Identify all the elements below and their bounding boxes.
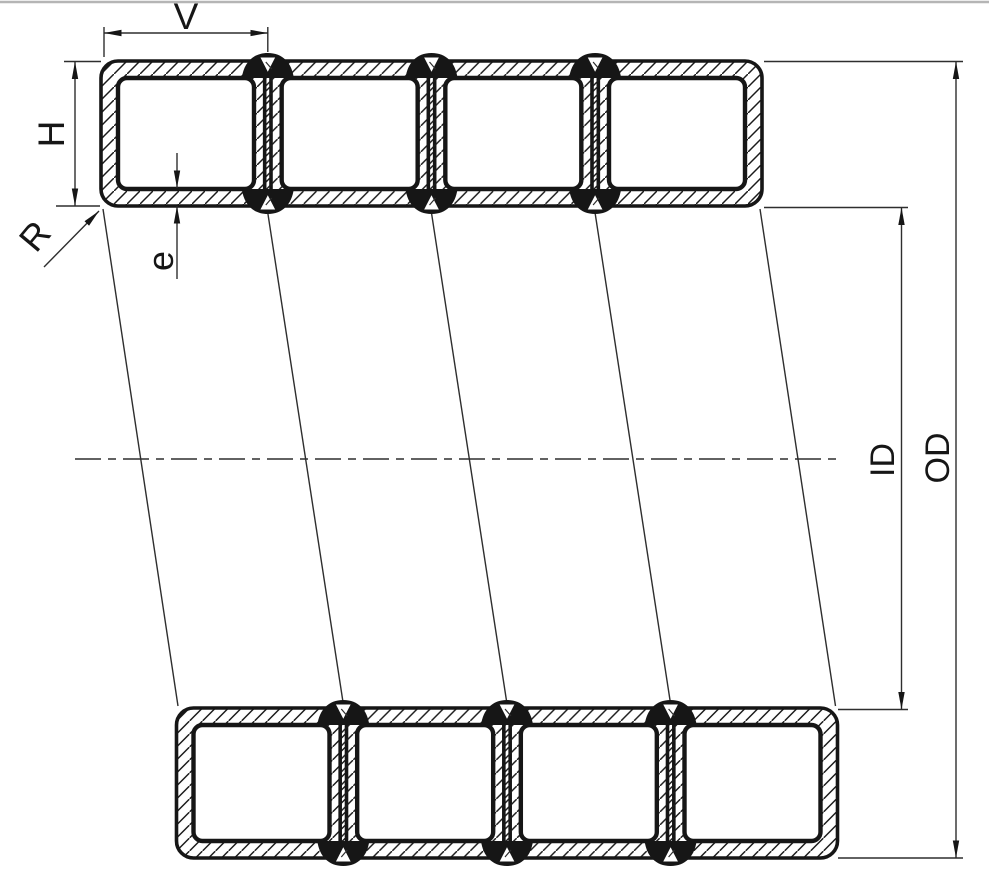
weld-junction	[317, 700, 369, 725]
weld-junction	[645, 841, 697, 866]
drawing-canvas: V H R e ID OD	[0, 0, 989, 876]
label-id: ID	[864, 443, 902, 477]
projection-lines	[103, 209, 836, 706]
weld-junction	[406, 53, 458, 78]
projection-line	[760, 209, 836, 706]
label-r: R	[11, 213, 59, 259]
label-od: OD	[919, 433, 957, 484]
weld-junction	[317, 841, 369, 866]
label-e: e	[140, 251, 181, 271]
weld-junction	[569, 53, 621, 78]
tube-cell	[340, 708, 510, 858]
tube-cell	[592, 61, 762, 206]
tube-row-top	[101, 53, 762, 214]
tube-row-bottom	[177, 700, 838, 866]
tube-cell	[265, 61, 435, 206]
weld-junction	[242, 189, 294, 214]
projection-line	[103, 209, 178, 706]
weld-junction	[242, 53, 294, 78]
weld-junction	[481, 841, 533, 866]
dimension-r: R	[11, 211, 99, 267]
label-v: V	[174, 0, 199, 37]
tube-cell	[428, 61, 598, 206]
label-h: H	[31, 121, 72, 148]
tube-cell	[101, 61, 271, 206]
tube-cell	[177, 708, 347, 858]
weld-junction	[481, 700, 533, 725]
weld-junction	[645, 700, 697, 725]
weld-junction	[569, 189, 621, 214]
tube-cell	[504, 708, 674, 858]
dimension-h: H	[31, 62, 101, 207]
tube-cell	[668, 708, 838, 858]
tube-cross-section-diagram: V H R e ID OD	[0, 0, 989, 876]
dimension-v: V	[104, 0, 268, 57]
weld-junction	[406, 189, 458, 214]
